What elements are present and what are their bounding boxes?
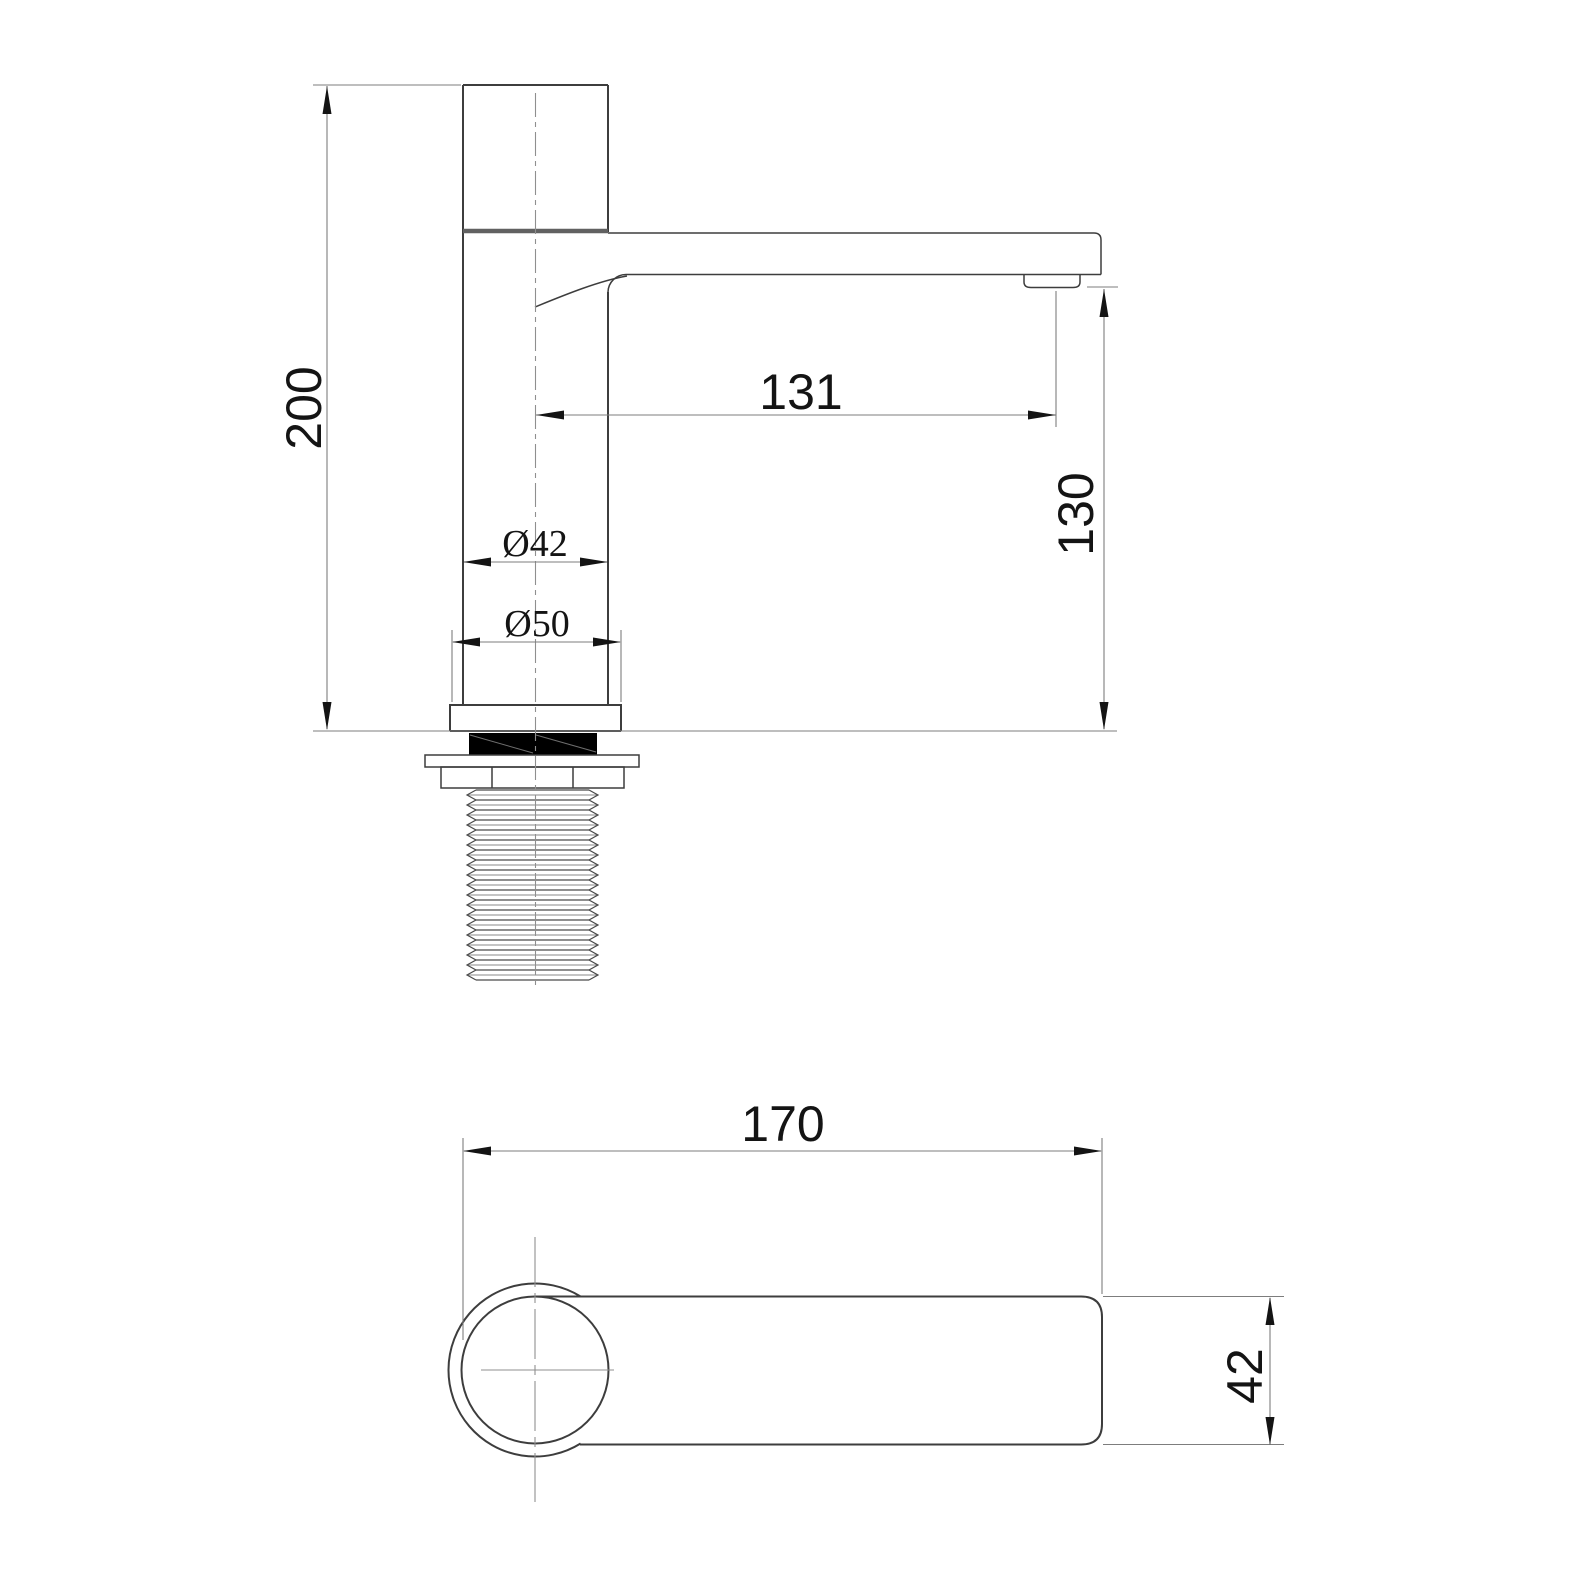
- dim-131-label: 131: [759, 364, 842, 420]
- aerator-outlet: [1024, 275, 1080, 288]
- dim-42dia-arrow-left: [463, 558, 491, 567]
- technical-drawing-canvas: 200 131 130 Ø42 Ø50: [0, 0, 1578, 1578]
- hex-nut-face-lines: [492, 767, 573, 788]
- drawing-page: 200 131 130 Ø42 Ø50: [0, 0, 1578, 1578]
- rubber-gasket: [469, 733, 597, 755]
- top-view-spout-outline: [535, 1297, 1102, 1445]
- dim-42dia-label: Ø42: [502, 523, 567, 565]
- dim-42-arrow-up: [1266, 1297, 1275, 1325]
- dim-130-arrow-down: [1100, 702, 1109, 730]
- dim-130-arrow-up: [1100, 289, 1109, 317]
- dim-200-arrow-up: [323, 86, 332, 114]
- mounting-washer: [425, 755, 639, 767]
- dim-42-label: 42: [1217, 1348, 1273, 1404]
- dim-131-arrow-left: [536, 411, 564, 420]
- dim-42-arrow-down: [1266, 1417, 1275, 1445]
- dim-170-label: 170: [741, 1096, 824, 1152]
- threaded-tailpiece: [467, 790, 598, 980]
- mounting-hex-nut: [441, 767, 624, 788]
- dim-170-arrow-left: [463, 1147, 491, 1156]
- dim-200-label: 200: [276, 366, 332, 449]
- top-view: [448, 1237, 1102, 1502]
- dim-50dia-label: Ø50: [504, 603, 569, 645]
- front-view: [313, 85, 1117, 990]
- dim-131-arrow-right: [1028, 411, 1056, 420]
- dim-170-arrow-right: [1074, 1147, 1102, 1156]
- dim-200-arrow-down: [323, 702, 332, 730]
- thread-crest-lines: [467, 795, 598, 975]
- dim-130-label: 130: [1048, 472, 1104, 555]
- top-view-dimensions: 170 42: [463, 1096, 1284, 1445]
- spout-top-edge: [608, 233, 1101, 275]
- dim-50dia-arrow-left: [452, 638, 480, 647]
- front-view-dimensions: 200 131 130 Ø42 Ø50: [276, 85, 1118, 730]
- dim-42dia-arrow-right: [580, 558, 608, 567]
